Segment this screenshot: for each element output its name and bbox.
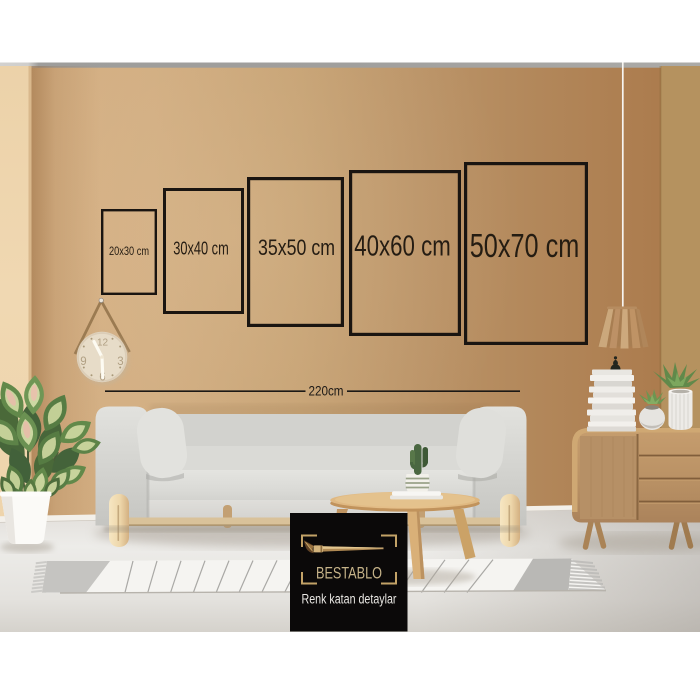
svg-text:40x60 cm: 40x60 cm <box>354 231 451 263</box>
svg-text:9: 9 <box>80 356 86 368</box>
svg-text:3: 3 <box>117 356 123 368</box>
svg-text:220cm: 220cm <box>309 383 344 398</box>
svg-text:20x30 cm: 20x30 cm <box>109 246 149 258</box>
svg-text:Renk katan detaylar: Renk katan detaylar <box>302 592 397 607</box>
svg-text:12: 12 <box>97 338 109 349</box>
svg-text:30x40 cm: 30x40 cm <box>173 239 229 259</box>
svg-text:50x70 cm: 50x70 cm <box>470 227 580 264</box>
svg-text:BESTABLO: BESTABLO <box>316 564 382 583</box>
svg-text:35x50 cm: 35x50 cm <box>258 235 335 260</box>
